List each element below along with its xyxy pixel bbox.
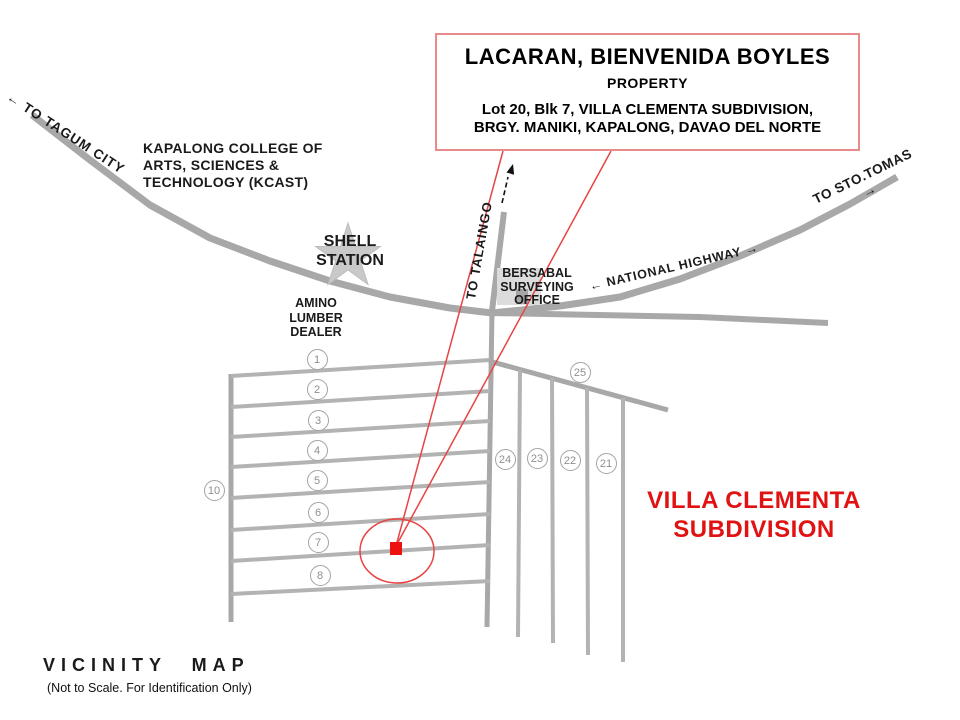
block-road-6 — [231, 514, 490, 530]
lot-marker-22: 22 — [560, 450, 581, 471]
right-road-a — [518, 370, 520, 637]
lot-marker-7: 7 — [308, 532, 329, 553]
block-road-8 — [231, 581, 490, 594]
lot-marker-6: 6 — [308, 502, 329, 523]
lot-marker-1: 1 — [307, 349, 328, 370]
lot-marker-24: 24 — [495, 449, 516, 470]
lot-marker-2: 2 — [307, 379, 328, 400]
right-road-c — [587, 388, 588, 655]
lot-marker-4: 4 — [307, 440, 328, 461]
vicinity-map-page: 12345678102524232221 ← TO TAGUM CITY KAP… — [0, 0, 960, 720]
landmark-label-kcast: KAPALONG COLLEGE OF ARTS, SCIENCES & TEC… — [143, 140, 323, 191]
property-owner-title: LACARAN, BIENVENIDA BOYLES — [437, 44, 858, 70]
property-marker-square — [390, 542, 402, 555]
lot-marker-23: 23 — [527, 448, 548, 469]
block-road-4 — [231, 451, 490, 467]
block-road-3 — [231, 421, 490, 437]
property-callout-box: LACARAN, BIENVENIDA BOYLES PROPERTY Lot … — [435, 33, 860, 151]
landmark-label-shell-station: SHELL STATION — [300, 233, 400, 270]
talaingo-direction-arrow-icon — [502, 164, 514, 203]
property-subtitle: PROPERTY — [437, 75, 858, 92]
block-road-1 — [231, 360, 490, 376]
lot-marker-25: 25 — [570, 362, 591, 383]
landmark-label-amino-lumber: AMINO LUMBER DEALER — [266, 296, 366, 340]
map-title: VICINITY MAP — [43, 655, 250, 676]
lot-marker-8: 8 — [310, 565, 331, 586]
lot-marker-21: 21 — [596, 453, 617, 474]
block-road-5 — [231, 482, 490, 498]
lot-marker-5: 5 — [307, 470, 328, 491]
block-road-2 — [231, 391, 490, 407]
landmark-label-bersabal: BERSABAL SURVEYING OFFICE — [492, 267, 582, 308]
road-highway-branch — [492, 313, 828, 323]
subdivision-name-label: VILLA CLEMENTA SUBDIVISION — [628, 486, 880, 544]
map-disclaimer-note: (Not to Scale. For Identification Only) — [47, 681, 252, 695]
right-road-b — [552, 378, 553, 643]
lot-marker-3: 3 — [308, 410, 329, 431]
property-address: Lot 20, Blk 7, VILLA CLEMENTA SUBDIVISIO… — [437, 101, 858, 137]
lot-marker-10: 10 — [204, 480, 225, 501]
